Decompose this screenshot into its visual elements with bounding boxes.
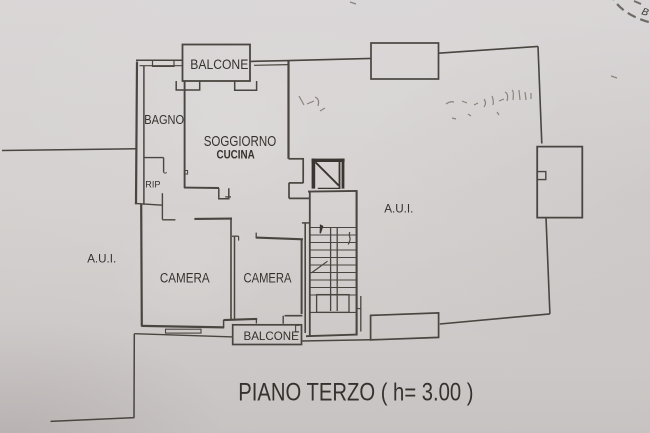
svg-text:SOGGIORNO: SOGGIORNO	[204, 133, 277, 150]
svg-text:CUCINA: CUCINA	[217, 149, 256, 162]
svg-text:BALCONE: BALCONE	[190, 57, 248, 72]
svg-text:PIANO TERZO ( h= 3.00 ): PIANO TERZO ( h= 3.00 )	[238, 379, 473, 407]
svg-text:A.U.I.: A.U.I.	[384, 201, 413, 215]
svg-text:BAGNO: BAGNO	[144, 112, 184, 127]
svg-text:CAMERA: CAMERA	[160, 271, 210, 287]
svg-text:BALCONE: BALCONE	[244, 329, 299, 343]
svg-text:RIP: RIP	[145, 180, 160, 191]
svg-text:A.U.I.: A.U.I.	[87, 251, 116, 265]
svg-text:CAMERA: CAMERA	[244, 271, 292, 287]
svg-text:B: B	[640, 6, 650, 19]
